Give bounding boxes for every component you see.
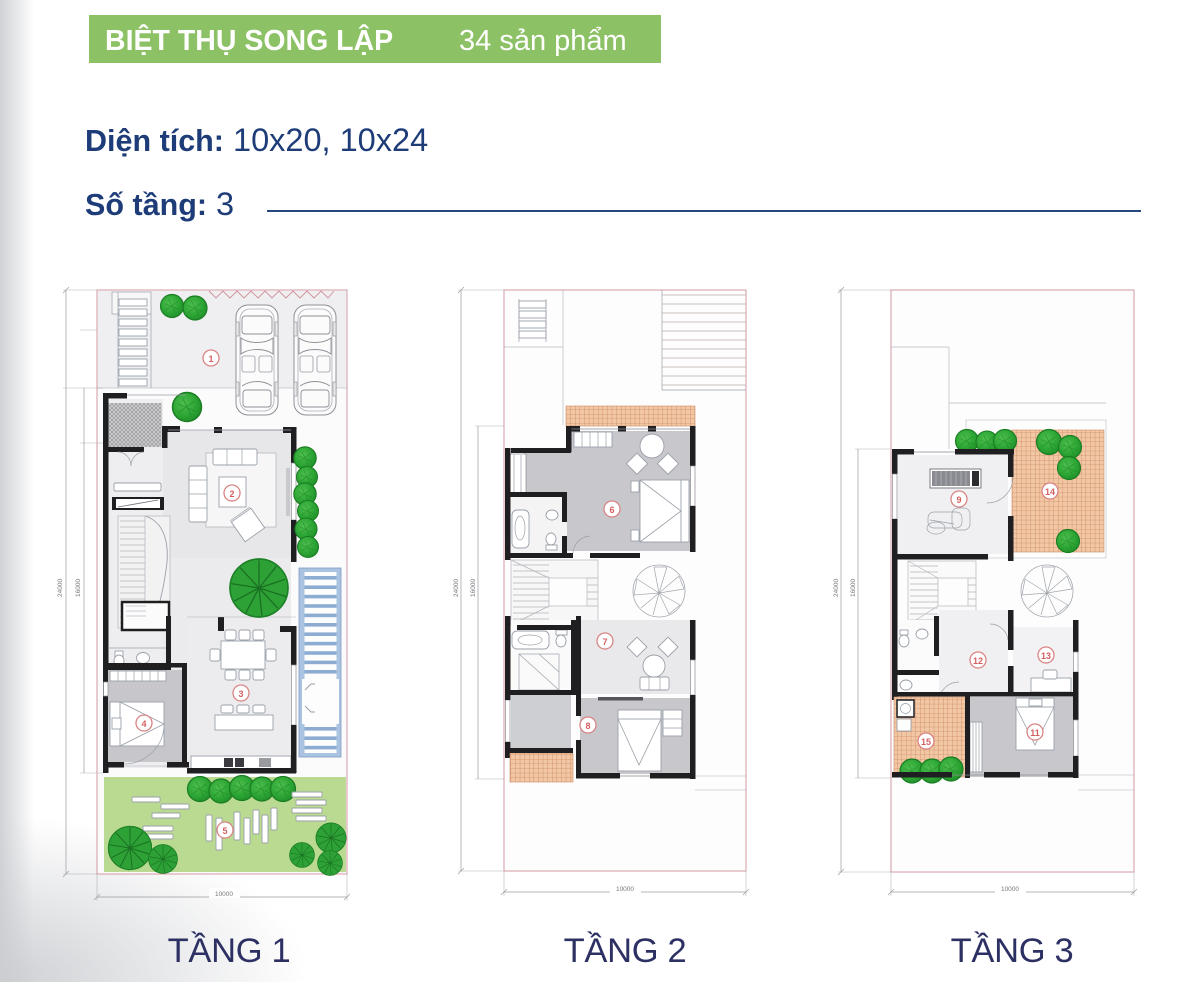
svg-text:3: 3	[238, 689, 243, 699]
svg-text:16000: 16000	[470, 579, 477, 597]
svg-text:24000: 24000	[57, 579, 64, 597]
svg-text:10000: 10000	[616, 886, 634, 893]
svg-text:24000: 24000	[453, 579, 460, 597]
svg-text:10000: 10000	[1001, 886, 1019, 893]
svg-text:15: 15	[921, 737, 931, 747]
svg-text:24000: 24000	[833, 579, 840, 597]
svg-text:Diện tích:: Diện tích:	[85, 124, 224, 158]
svg-text:12: 12	[973, 656, 983, 666]
svg-text:13: 13	[1041, 651, 1051, 661]
svg-text:10000: 10000	[215, 891, 233, 898]
svg-text:16000: 16000	[75, 579, 82, 597]
svg-text:TẦNG 1: TẦNG 1	[168, 930, 291, 970]
svg-text:8: 8	[585, 721, 590, 731]
svg-text:5: 5	[222, 826, 227, 836]
svg-text:TẦNG 2: TẦNG 2	[564, 930, 687, 970]
svg-text:16000: 16000	[850, 579, 857, 597]
svg-text:Số tầng:: Số tầng:	[85, 188, 207, 222]
svg-text:6: 6	[609, 505, 614, 515]
svg-text:4: 4	[141, 719, 146, 729]
svg-text:34 sản phẩm: 34 sản phẩm	[459, 25, 627, 57]
svg-text:14: 14	[1045, 487, 1055, 497]
svg-text:2: 2	[229, 489, 234, 499]
svg-text:10x20, 10x24: 10x20, 10x24	[233, 122, 428, 158]
svg-text:3: 3	[216, 186, 234, 222]
svg-text:1: 1	[208, 354, 213, 364]
svg-text:9: 9	[956, 495, 961, 505]
svg-text:TẦNG 3: TẦNG 3	[951, 930, 1074, 970]
svg-text:7: 7	[602, 637, 607, 647]
svg-text:11: 11	[1030, 728, 1040, 738]
svg-text:BIỆT THỤ SONG LẬP: BIỆT THỤ SONG LẬP	[105, 25, 393, 57]
